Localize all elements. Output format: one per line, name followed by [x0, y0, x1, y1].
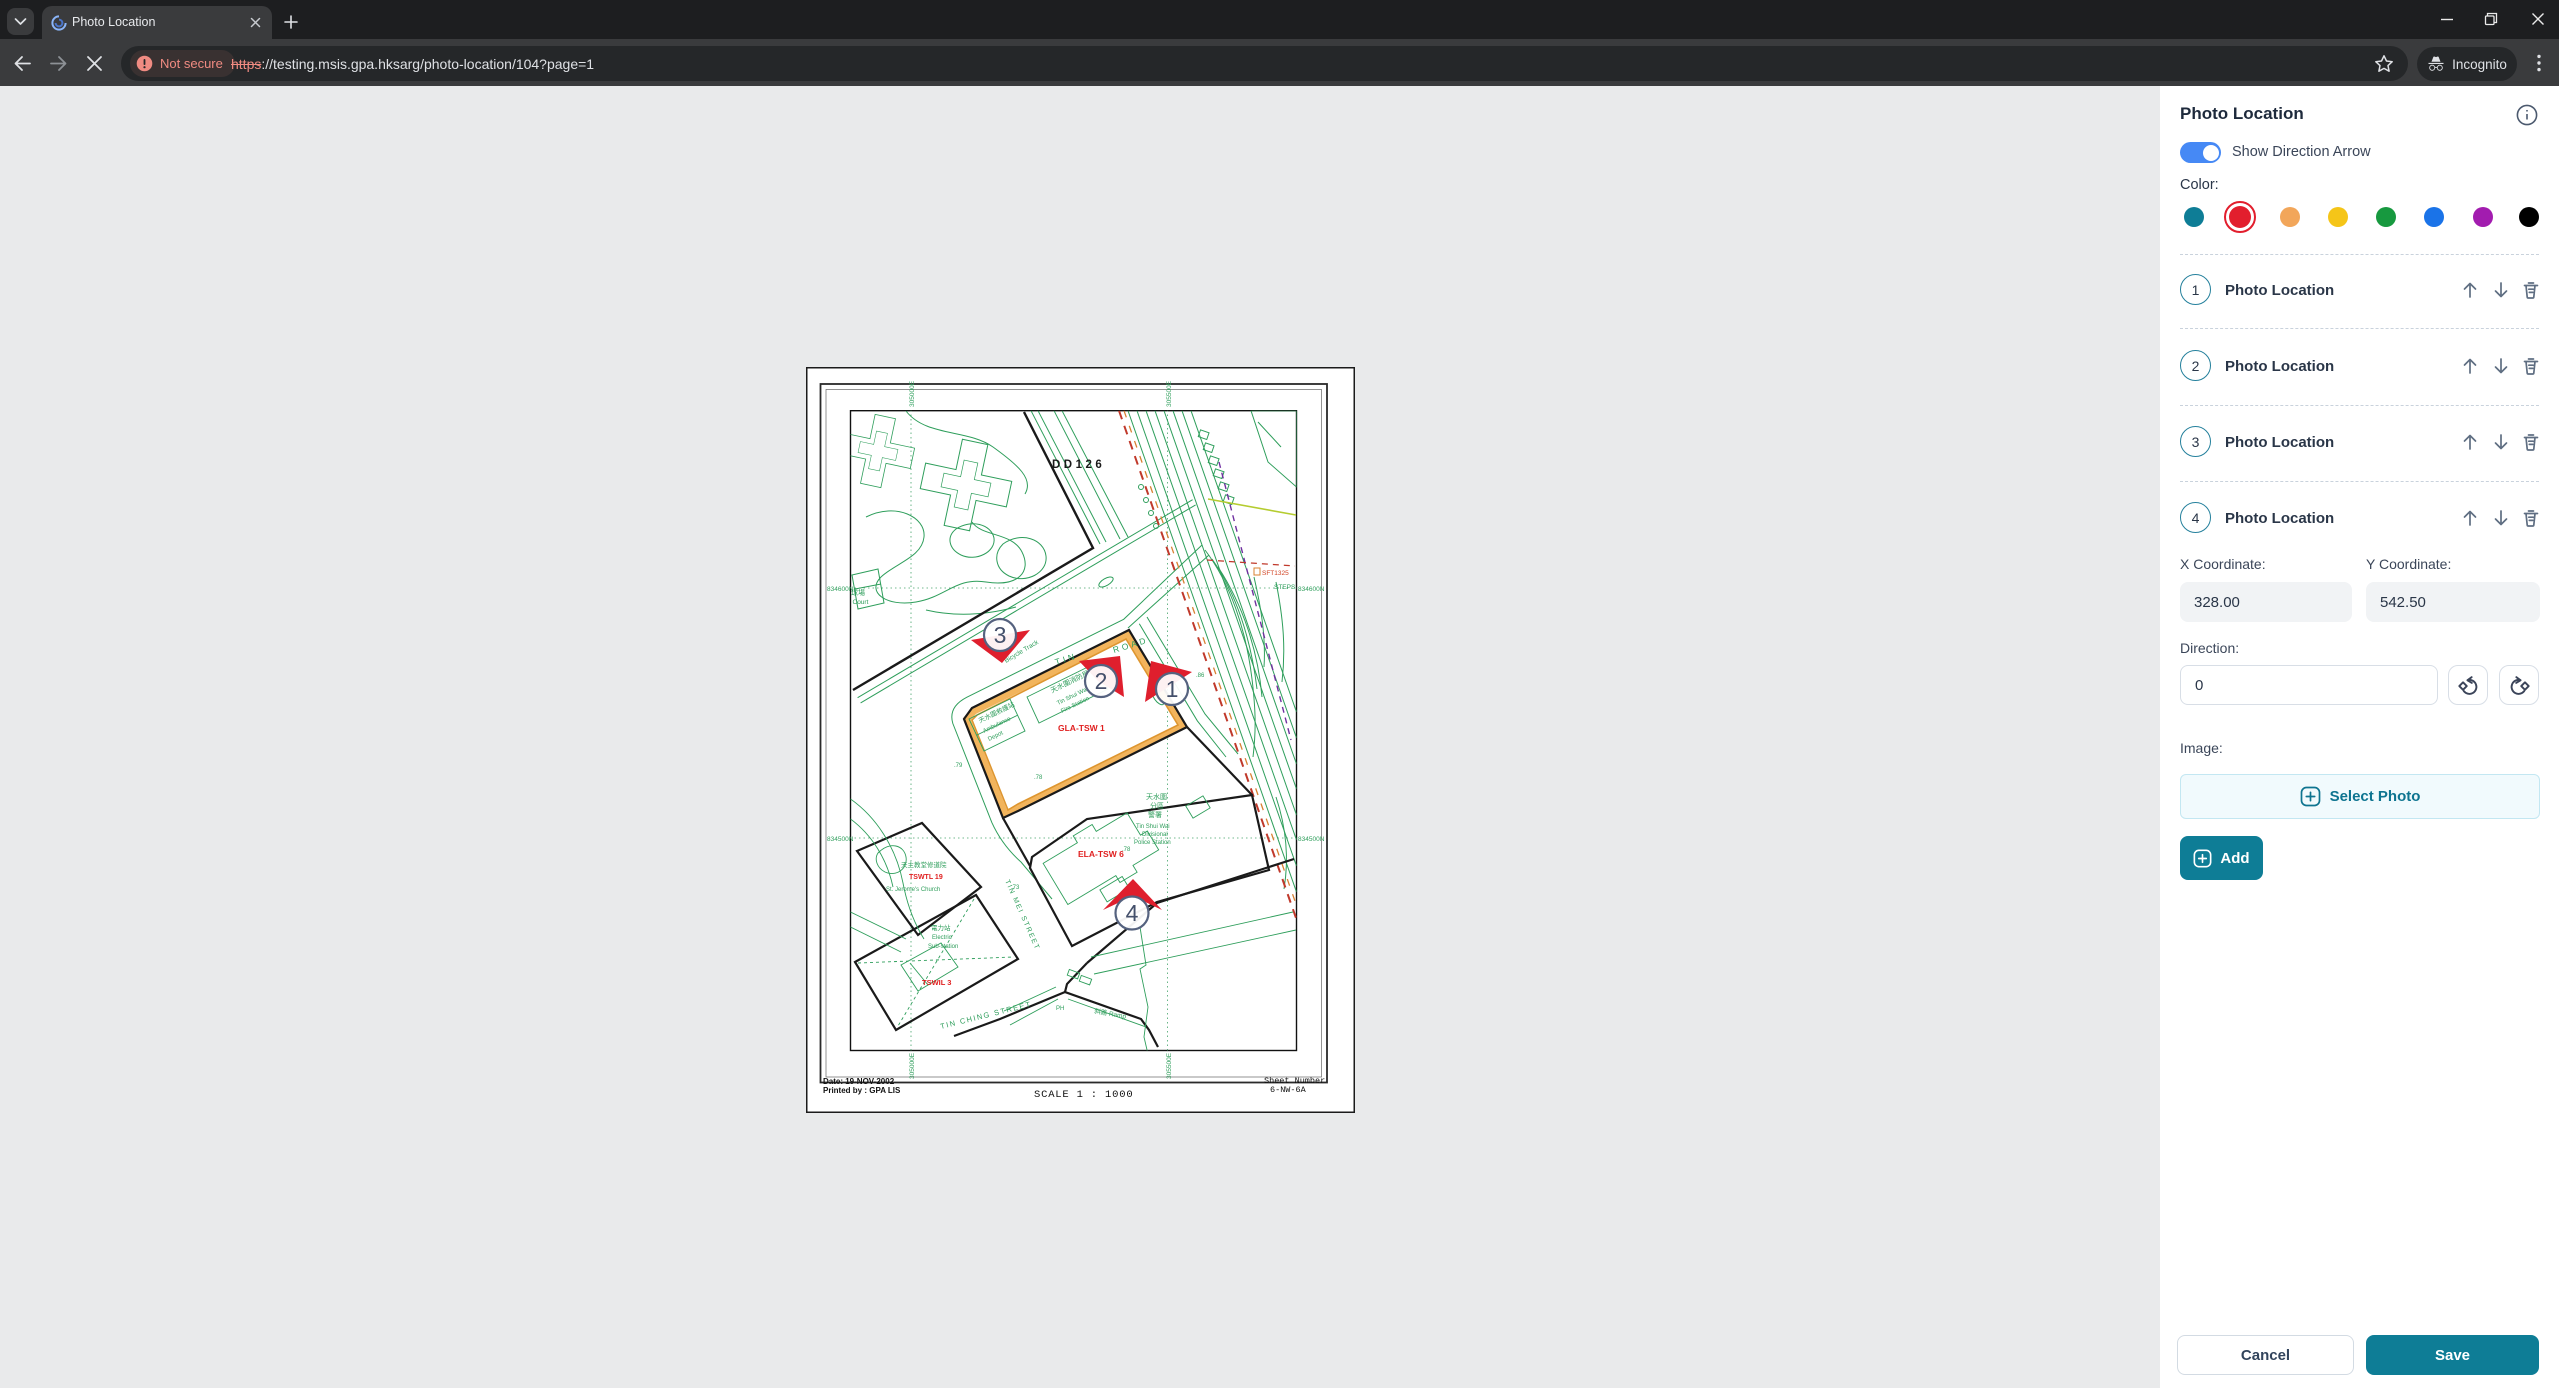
svg-text:Tin Shui Wai: Tin Shui Wai: [1136, 824, 1170, 830]
svg-text:4: 4: [1126, 900, 1139, 926]
svg-text:834600N: 834600N: [827, 586, 854, 593]
svg-text:St. Jerome's Church: St. Jerome's Church: [886, 887, 940, 893]
svg-text:GLA-TSW 1: GLA-TSW 1: [1058, 723, 1105, 733]
svg-text:305500E: 305500E: [1166, 1052, 1173, 1079]
svg-text:SFT1325: SFT1325: [1262, 570, 1289, 577]
svg-text:305000E: 305000E: [909, 1052, 916, 1079]
svg-text:TSWTL 19: TSWTL 19: [909, 874, 943, 881]
svg-text:834500N: 834500N: [827, 836, 854, 843]
svg-text:Sub-station: Sub-station: [928, 944, 958, 950]
svg-text:天水圍: 天水圍: [1146, 792, 1167, 801]
svg-text:Printed by : GPA LIS: Printed by : GPA LIS: [823, 1086, 901, 1095]
svg-text:.73: .73: [1011, 885, 1020, 891]
svg-text:警署: 警署: [1148, 810, 1162, 819]
svg-text:分區: 分區: [1150, 801, 1164, 810]
svg-text:Police Station: Police Station: [1134, 840, 1171, 846]
svg-text:1: 1: [1166, 676, 1179, 702]
svg-text:DD126: DD126: [1052, 459, 1105, 471]
svg-text:STEPS: STEPS: [1274, 584, 1296, 591]
svg-text:ELA-TSW 6: ELA-TSW 6: [1078, 849, 1124, 859]
svg-text:.78: .78: [1034, 775, 1043, 781]
svg-text:.86: .86: [1196, 673, 1205, 679]
svg-text:305000E: 305000E: [909, 380, 916, 407]
svg-text:3: 3: [994, 622, 1007, 648]
svg-text:834500N: 834500N: [1298, 836, 1325, 843]
svg-text:Electric: Electric: [932, 935, 952, 941]
svg-text:834600N: 834600N: [1298, 586, 1325, 593]
svg-text:.78: .78: [1122, 847, 1131, 853]
svg-text:2: 2: [1095, 668, 1108, 694]
svg-text:305500E: 305500E: [1166, 380, 1173, 407]
svg-text:Divisional: Divisional: [1142, 832, 1168, 838]
svg-text:.79: .79: [954, 763, 963, 769]
svg-text:6-NW-6A: 6-NW-6A: [1270, 1085, 1307, 1095]
svg-text:天主教堂修道院: 天主教堂修道院: [901, 860, 947, 869]
svg-text:PH: PH: [1056, 1006, 1064, 1012]
svg-text:Date: 19-NOV-2002: Date: 19-NOV-2002: [823, 1077, 895, 1086]
svg-text:SCALE 1 : 1000: SCALE 1 : 1000: [1034, 1089, 1133, 1101]
svg-text:電力站: 電力站: [931, 923, 951, 932]
svg-text:TSWIL 3: TSWIL 3: [922, 978, 951, 987]
